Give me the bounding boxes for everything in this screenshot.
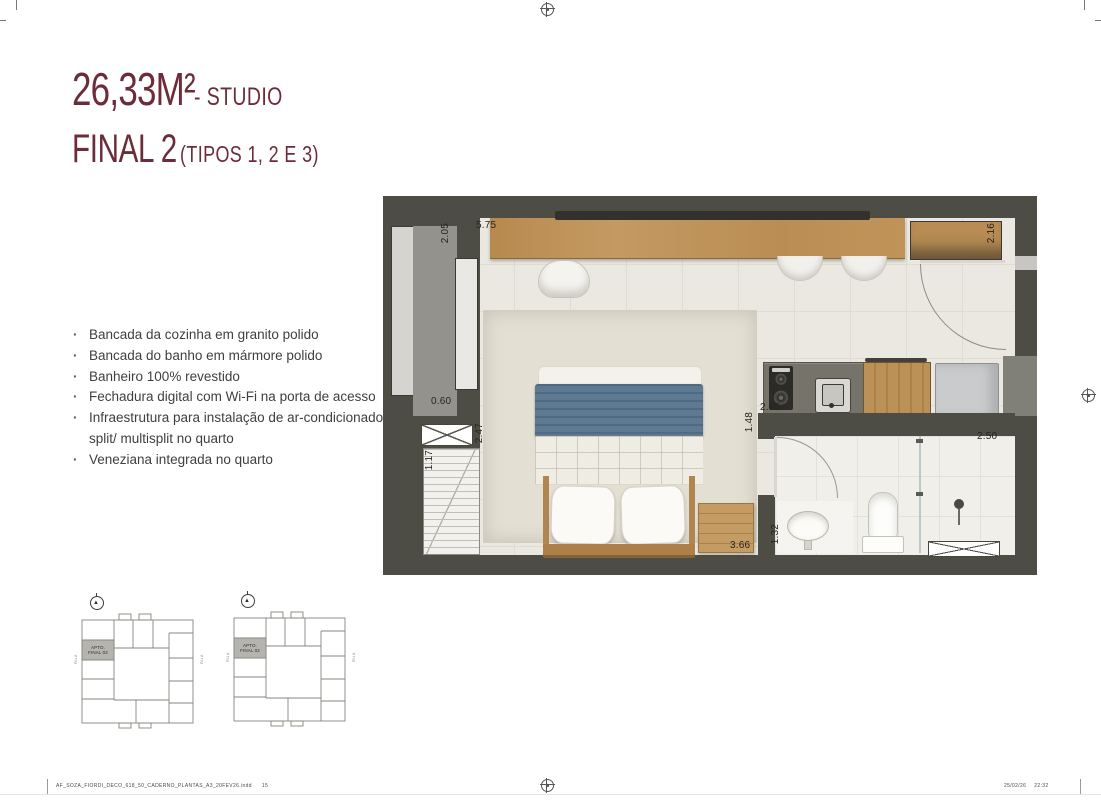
bed-rail — [689, 476, 695, 554]
dim-niche: 0.60 — [431, 397, 451, 407]
registration-mark-top-icon — [541, 3, 554, 16]
bed-blanket — [535, 384, 703, 438]
crop-mark-top-left-h — [0, 20, 6, 21]
crop-mark-top-right-v — [1084, 0, 1085, 10]
crop-mark-top-right-h — [1095, 20, 1101, 21]
feature-item: Bancada do banho em mármore polido — [70, 346, 410, 367]
refrigerator — [935, 363, 999, 419]
toilet-tank — [862, 536, 904, 553]
footer-filename: AF_SOZA_FIORDI_DECO_618_50_CADERNO_PLANT… — [56, 783, 268, 789]
kitchen-cabinet — [863, 362, 931, 415]
dim-bed-wall: 3.66 — [730, 541, 750, 551]
window-left-outer — [391, 226, 415, 396]
feature-item: Banheiro 100% revestido — [70, 367, 410, 388]
footer-tick-left — [47, 779, 48, 795]
kitchen-cabinet-handle — [865, 358, 927, 362]
street-label-left: RUA — [73, 654, 78, 664]
key-plan-1: APTO. FINAL 02 RUA RUA — [63, 594, 213, 739]
key-plan-2: APTO. FINAL 02 RUA RUA — [215, 592, 365, 737]
dim-shower: 2.50 — [977, 432, 997, 442]
footer-filename-text: AF_SOZA_FIORDI_DECO_618_50_CADERNO_PLANT… — [56, 783, 252, 789]
kitchen-faucet — [829, 403, 834, 408]
feature-list: Bancada da cozinha em granito polido Ban… — [70, 325, 410, 471]
page-edge-line — [0, 794, 1101, 795]
window-ledge — [413, 226, 457, 416]
shower-glass-hardware — [916, 492, 923, 496]
dim-desk-width: 5.75 — [476, 221, 496, 231]
title-block: 26,33M² - STUDIO FINAL 2 (TIPOS 1, 2 E 3… — [72, 66, 358, 169]
shaft-hatch — [421, 424, 473, 446]
pedestal-sink — [787, 511, 829, 541]
key-plan-unit-label: APTO. FINAL 02 — [82, 640, 114, 660]
key-plan-unit-label: APTO. FINAL 02 — [234, 638, 266, 658]
north-arrow-icon — [241, 594, 255, 608]
page-title-unit-suffix: (TIPOS 1, 2 E 3) — [180, 141, 319, 168]
dim-hall: 1.48 — [745, 412, 755, 432]
page-title-unit: FINAL 2 — [72, 129, 177, 169]
right-wall-shaft — [1003, 356, 1037, 416]
feature-item: Fechadura digital com Wi-Fi na porta de … — [70, 387, 410, 408]
shower-glass-hardware — [916, 439, 923, 443]
cooktop-panel — [772, 368, 790, 372]
bed-rail — [543, 476, 549, 554]
toilet — [868, 492, 898, 542]
pillow — [550, 485, 615, 545]
feature-item: Bancada da cozinha em granito polido — [70, 325, 410, 346]
floor-plan: 5.75 2.05 2.16 0.60 2.47 1.17 2.65 1.48 … — [383, 196, 1037, 575]
window-left-inner — [455, 258, 478, 390]
street-label-right: RUA — [351, 652, 356, 662]
bed-quilt — [535, 436, 703, 485]
footer-date: 25/02/26 — [1004, 783, 1026, 789]
bed-headboard — [543, 544, 695, 558]
dim-bath: 1.32 — [771, 524, 781, 544]
street-label-left: RUA — [225, 652, 230, 662]
page-title-area-suffix: - STUDIO — [194, 83, 283, 112]
dim-window: 2.05 — [441, 223, 451, 243]
key-plan-drawing — [233, 611, 346, 727]
footer-time: 22:32 — [1034, 783, 1048, 789]
desk-counter — [490, 218, 905, 259]
desk-chair — [538, 260, 590, 298]
registration-mark-bottom-icon — [541, 779, 554, 792]
pillow — [620, 485, 686, 545]
crop-mark-top-left-v — [16, 0, 17, 10]
dim-room-depth: 2.47 — [475, 423, 485, 443]
shower-head — [954, 499, 964, 509]
key-plan-drawing — [81, 613, 194, 729]
entry-threshold — [1015, 256, 1037, 270]
feature-item: Veneziana integrada no quarto — [70, 450, 410, 471]
key-plan-unit-line2: FINAL 02 — [88, 650, 108, 656]
bathroom-window-hatch — [928, 541, 1000, 557]
tv — [555, 211, 870, 220]
footer-tick-right — [1080, 779, 1081, 795]
street-label-right: RUA — [199, 654, 204, 664]
bed — [535, 366, 703, 558]
registration-mark-right-icon — [1082, 389, 1095, 402]
key-plan-unit-line2: FINAL 02 — [240, 648, 260, 654]
entry-door-leaf — [920, 260, 1005, 263]
shower-stem — [958, 509, 960, 525]
dim-upper-cabinet: 2.16 — [987, 223, 997, 243]
north-arrow-icon — [90, 596, 104, 610]
dim-kitchen: 2.65 — [760, 403, 780, 413]
dim-wardrobe: 1.17 — [425, 450, 435, 470]
footer-page-number: 15 — [262, 783, 268, 789]
feature-item: Infraestrutura para instalação de ar-con… — [70, 408, 410, 450]
page-title-area: 26,33M² — [72, 66, 195, 112]
footer-timestamp: 25/02/2622:32 — [1004, 783, 1049, 789]
bathroom-left-wall — [758, 413, 775, 439]
